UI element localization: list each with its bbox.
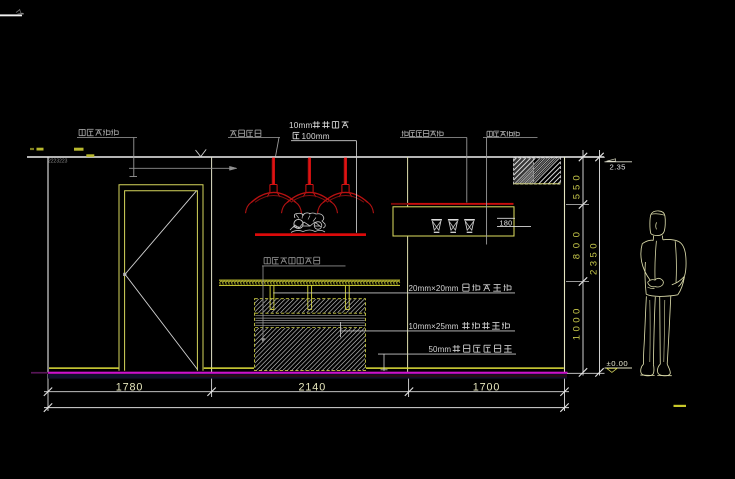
svg-text:2350: 2350	[588, 240, 599, 275]
svg-text:550: 550	[572, 171, 583, 199]
svg-text:1780: 1780	[116, 381, 144, 393]
svg-text:10mm×25mm: 10mm×25mm	[409, 322, 459, 331]
svg-text:±0.00: ±0.00	[607, 359, 629, 368]
svg-text:100mm: 100mm	[302, 132, 330, 141]
svg-text:1000: 1000	[572, 305, 583, 340]
svg-text:2.35: 2.35	[610, 163, 626, 172]
svg-text:800: 800	[572, 226, 583, 259]
svg-text:10mm: 10mm	[289, 121, 313, 130]
svg-text:2223223: 2223223	[48, 158, 68, 164]
svg-text:1700: 1700	[473, 381, 501, 393]
svg-text:50mm: 50mm	[429, 345, 452, 354]
svg-text:2140: 2140	[298, 381, 326, 393]
svg-text:20mm×20mm: 20mm×20mm	[409, 284, 459, 293]
